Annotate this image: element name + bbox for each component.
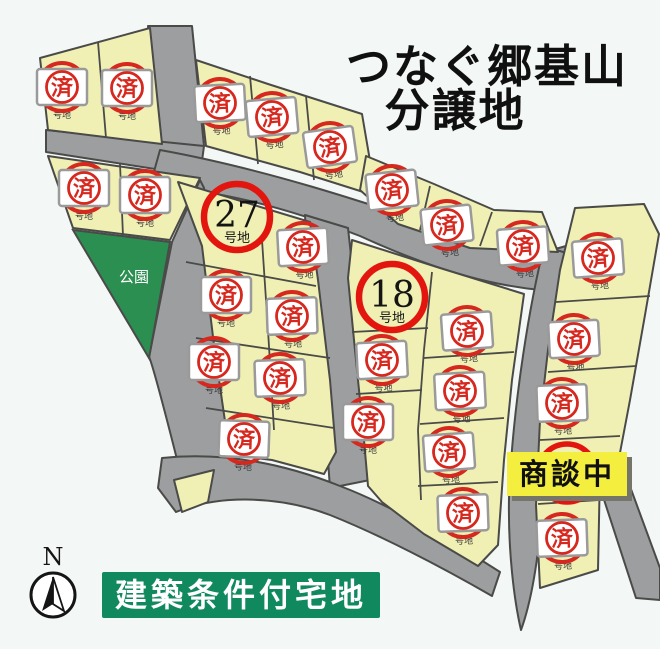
lot-27-suffix: 号地 xyxy=(224,230,250,245)
sold-stamp-label: 済 xyxy=(233,427,257,453)
sold-stamp-label: 済 xyxy=(116,76,139,101)
map-canvas: 公園 号地済号地済号地済号地済号地済号地済号地済号地済号地済号地済号地済号地済号… xyxy=(0,0,660,649)
sold-stamp-label: 済 xyxy=(435,212,460,239)
subdivision-map-page: 公園 号地済号地済号地済号地済号地済号地済号地済号地済号地済号地済号地済号地済号… xyxy=(0,0,660,649)
compass: N xyxy=(31,543,75,617)
sold-stamp-label: 済 xyxy=(562,326,586,352)
sold-stamp-label: 済 xyxy=(357,410,380,435)
sold-stamp-label: 済 xyxy=(586,245,611,272)
sold-stamp-label: 済 xyxy=(203,350,226,375)
legend-label: 建築条件付宅地 xyxy=(115,577,367,613)
sold-stamp-label: 済 xyxy=(281,304,305,330)
park-label: 公園 xyxy=(119,269,149,286)
sold-stamp-label: 済 xyxy=(437,439,462,466)
title-line-2: 分譲地 xyxy=(384,85,525,136)
map-title: つなぐ郷基山 分譲地 xyxy=(346,41,628,136)
sold-stamp-label: 済 xyxy=(134,183,157,208)
sold-stamp-label: 済 xyxy=(291,234,315,260)
sold-stamp-label: 済 xyxy=(380,177,405,204)
legend: 建築条件付宅地 xyxy=(102,572,380,618)
negotiating-label: 商談中 xyxy=(519,457,615,491)
sold-stamp-label: 済 xyxy=(269,366,293,392)
sold-stamp-label: 済 xyxy=(452,501,476,527)
sold-stamp-label: 済 xyxy=(551,526,575,552)
lot-18-suffix: 号地 xyxy=(379,310,405,325)
sold-stamp-label: 済 xyxy=(73,176,96,201)
sold-stamp-label: 済 xyxy=(511,233,536,260)
sold-stamp-label: 済 xyxy=(208,90,232,116)
sold-stamp-label: 済 xyxy=(455,318,480,345)
sold-stamp-label: 済 xyxy=(215,283,238,308)
sold-stamp-label: 済 xyxy=(260,104,285,131)
sold-stamp-label: 済 xyxy=(51,75,74,100)
sold-stamp-label: 済 xyxy=(551,391,575,417)
negotiating-overlay: 商談中 xyxy=(507,444,632,502)
sold-stamp-label: 済 xyxy=(448,378,472,404)
compass-n-label: N xyxy=(43,543,64,571)
sold-stamp-label: 済 xyxy=(370,347,394,373)
sold-stamp-label: 済 xyxy=(317,133,343,161)
